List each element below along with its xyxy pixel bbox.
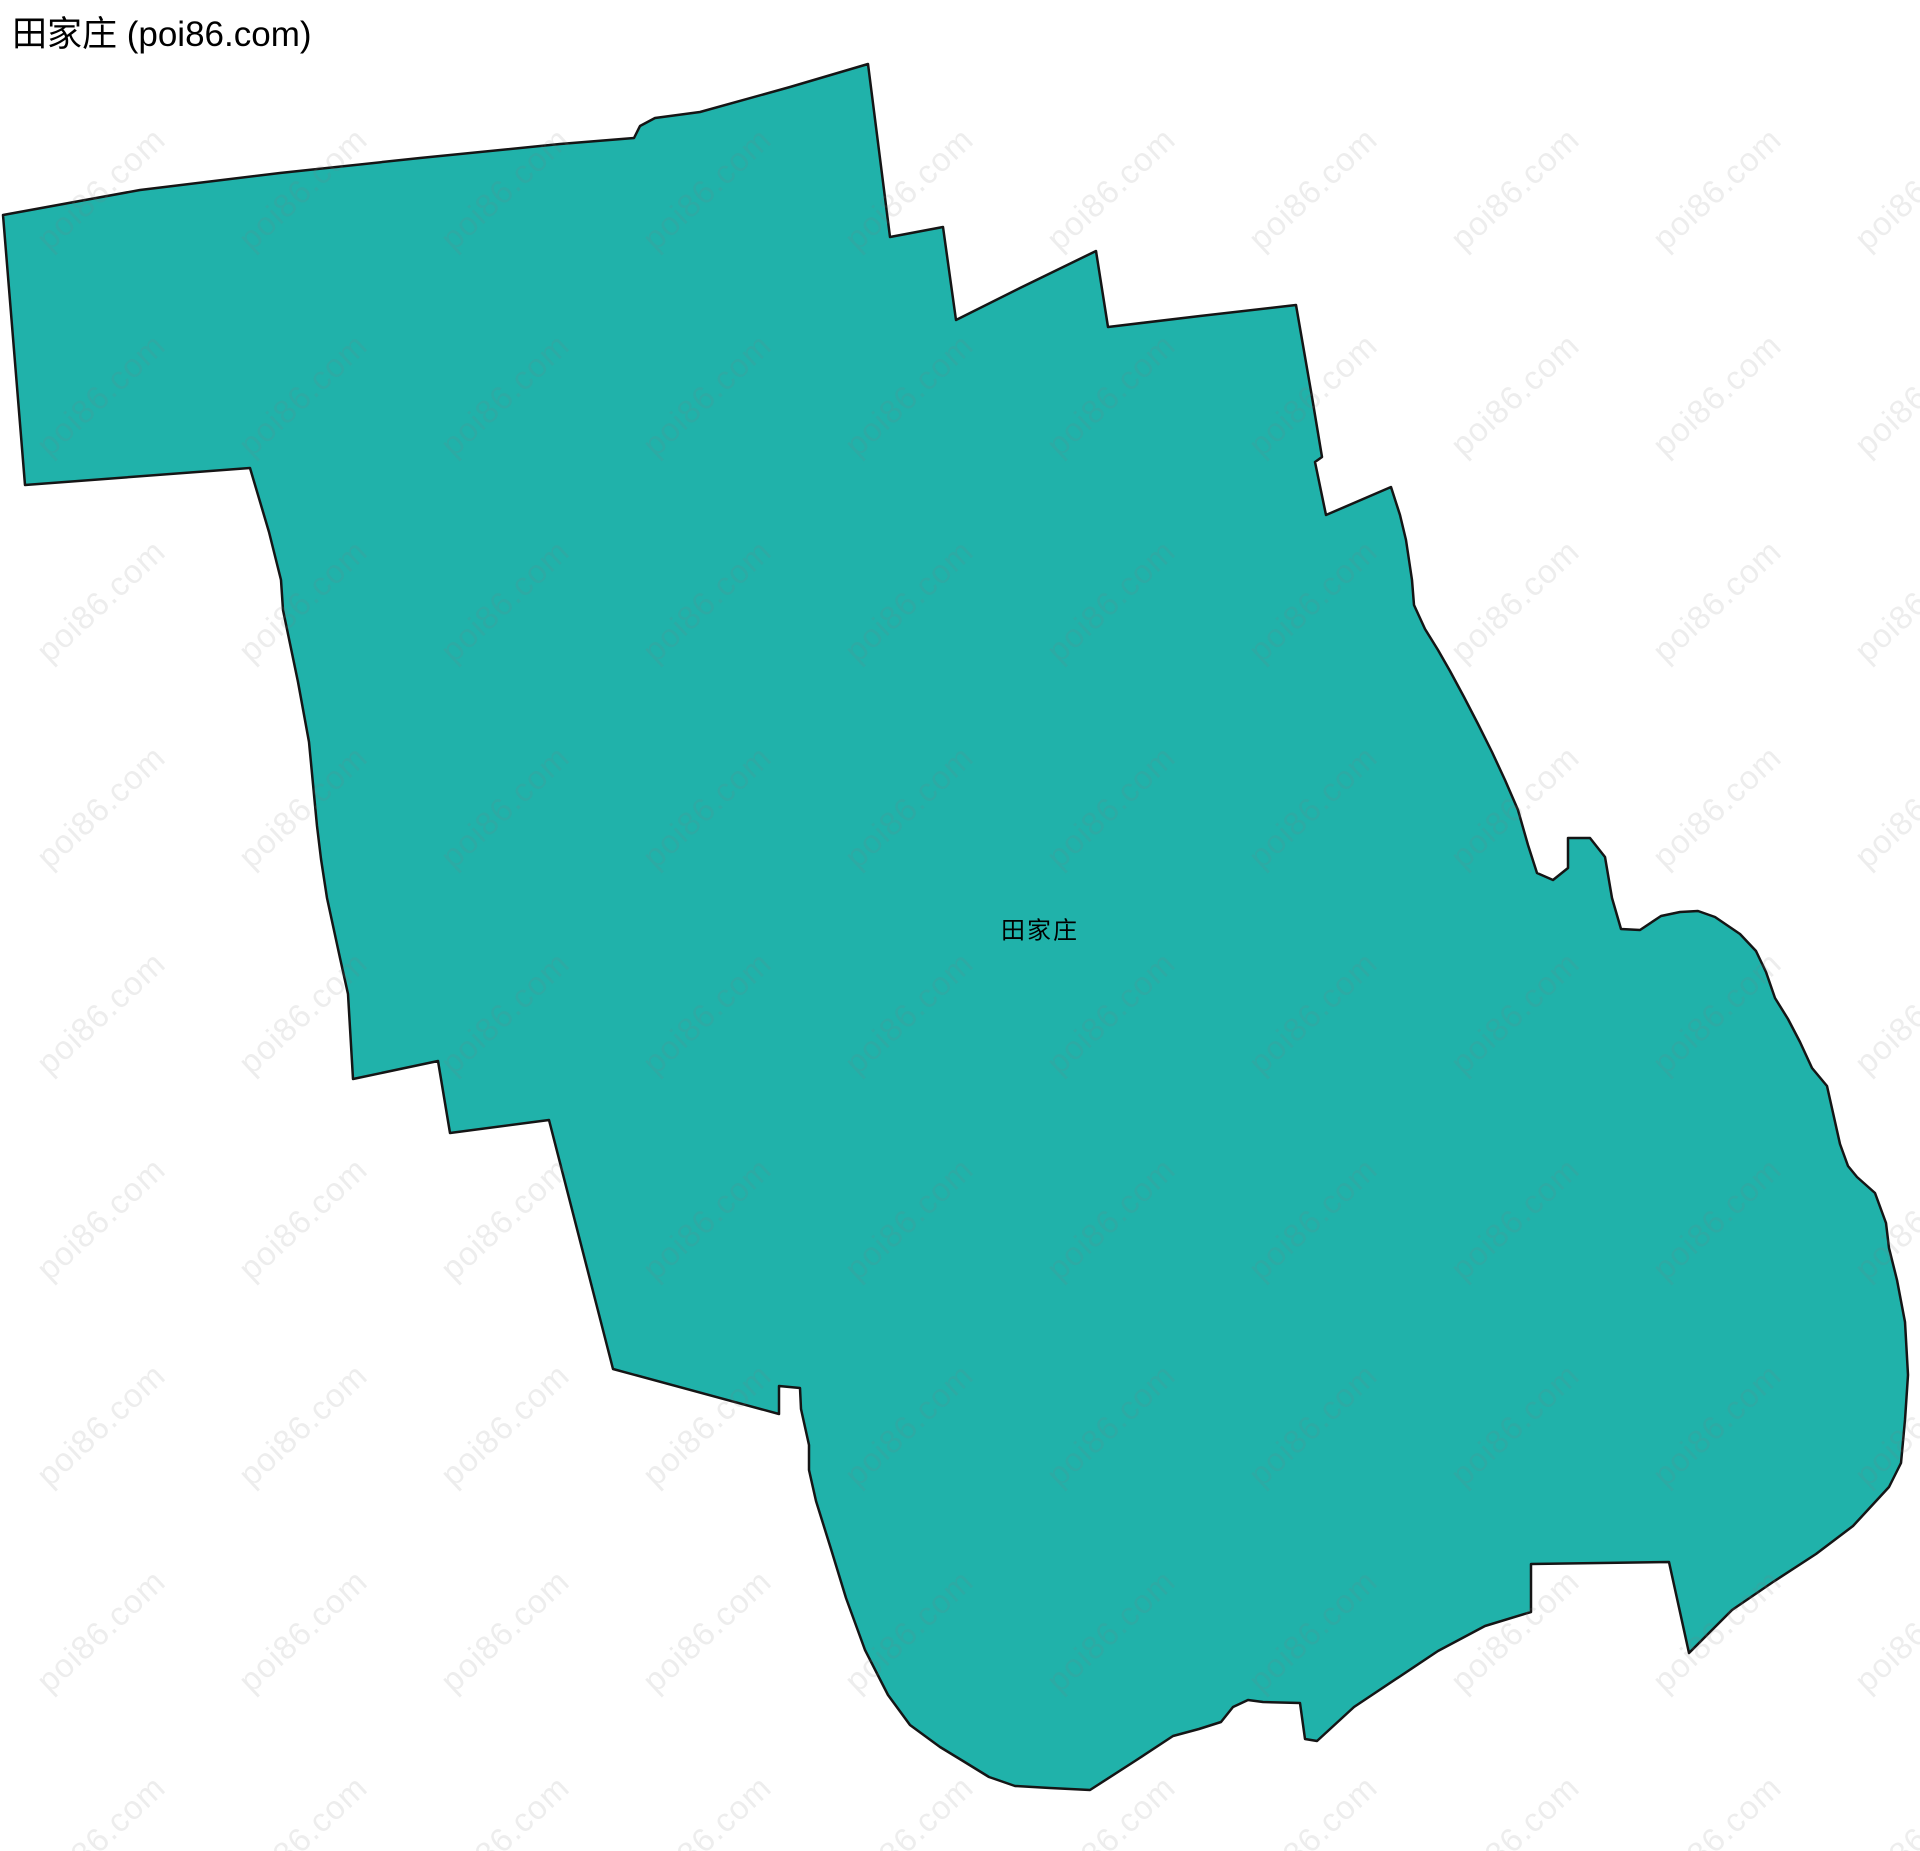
page-title: 田家庄 (poi86.com) (12, 6, 312, 57)
map-canvas: poi86.compoi86.compoi86.compoi86.compoi8… (0, 0, 1920, 1851)
boundary-map (0, 0, 1920, 1851)
region-polygon (3, 64, 1908, 1790)
region-label: 田家庄 (1001, 911, 1079, 946)
